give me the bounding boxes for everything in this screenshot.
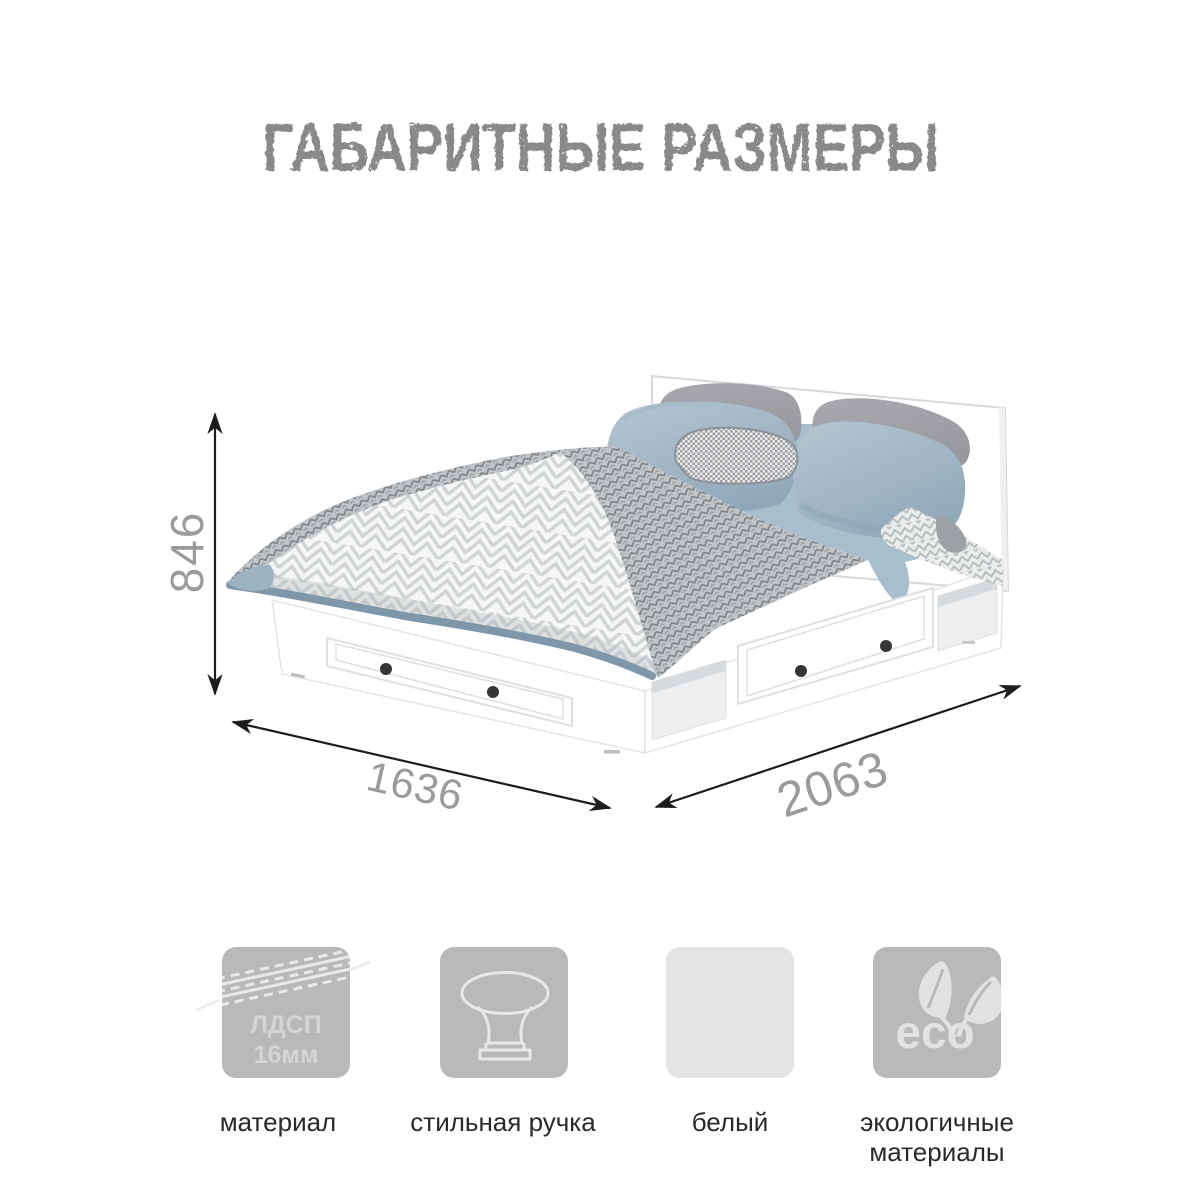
svg-text:846: 846 [161,511,213,594]
svg-text:eco: eco [895,1006,974,1058]
svg-text:16мм: 16мм [254,1041,319,1069]
svg-text:ЛДСП: ЛДСП [250,1011,321,1039]
svg-text:1636: 1636 [362,752,467,819]
svg-text:2063: 2063 [771,741,895,828]
